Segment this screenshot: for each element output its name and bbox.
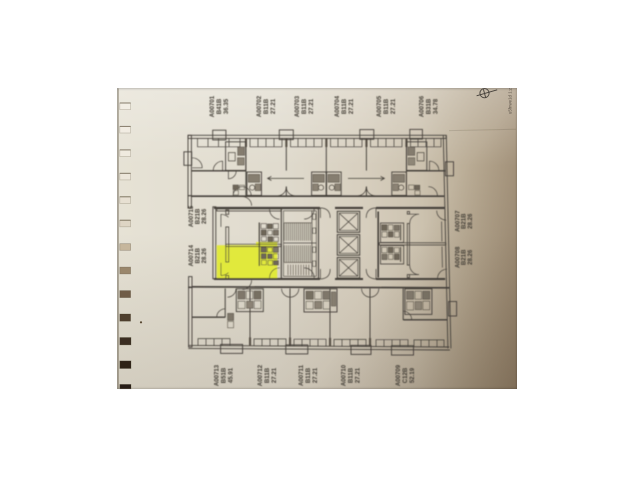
svg-text:A00711: A00711	[298, 364, 305, 386]
svg-text:B51B: B51B	[221, 367, 228, 383]
svg-text:A00709: A00709	[395, 364, 402, 386]
svg-text:27.21: 27.21	[270, 98, 277, 114]
svg-text:27.21: 27.21	[308, 98, 315, 114]
svg-text:52.19: 52.19	[409, 367, 416, 383]
svg-text:B11B: B11B	[263, 98, 270, 114]
svg-text:A00701: A00701	[209, 95, 216, 117]
svg-text:A00702: A00702	[256, 95, 263, 117]
svg-text:A00704: A00704	[334, 95, 341, 117]
svg-text:A00712: A00712	[257, 364, 264, 386]
svg-text:27.21: 27.21	[390, 98, 397, 114]
svg-text:B41B: B41B	[216, 98, 223, 114]
svg-text:A00703: A00703	[294, 95, 301, 117]
svg-text:36.35: 36.35	[223, 98, 230, 114]
svg-text:B11B: B11B	[301, 98, 308, 114]
svg-text:A00706: A00706	[419, 95, 426, 117]
svg-text:B11B: B11B	[305, 367, 312, 383]
svg-text:A00710: A00710	[341, 364, 348, 386]
svg-text:B11B: B11B	[341, 98, 348, 114]
svg-text:C12B: C12B	[402, 367, 409, 383]
svg-text:27.21: 27.21	[271, 367, 278, 383]
svg-text:A00713: A00713	[214, 364, 221, 386]
svg-text:28.26: 28.26	[201, 247, 208, 263]
svg-text:B11B: B11B	[264, 367, 271, 383]
svg-text:B11B: B11B	[383, 98, 390, 114]
svg-text:28.26: 28.26	[467, 249, 474, 265]
svg-text:B31B: B31B	[426, 98, 433, 114]
svg-text:28.26: 28.26	[201, 208, 208, 224]
svg-text:27.21: 27.21	[312, 367, 319, 383]
svg-text:27.21: 27.21	[348, 98, 355, 114]
svg-text:34.78: 34.78	[433, 98, 440, 114]
svg-text:45.91: 45.91	[228, 367, 235, 383]
svg-text:A00705: A00705	[376, 95, 383, 117]
svg-text:B11B: B11B	[348, 367, 355, 383]
svg-text:28.26: 28.26	[467, 213, 474, 229]
svg-text:27.21: 27.21	[355, 367, 362, 383]
